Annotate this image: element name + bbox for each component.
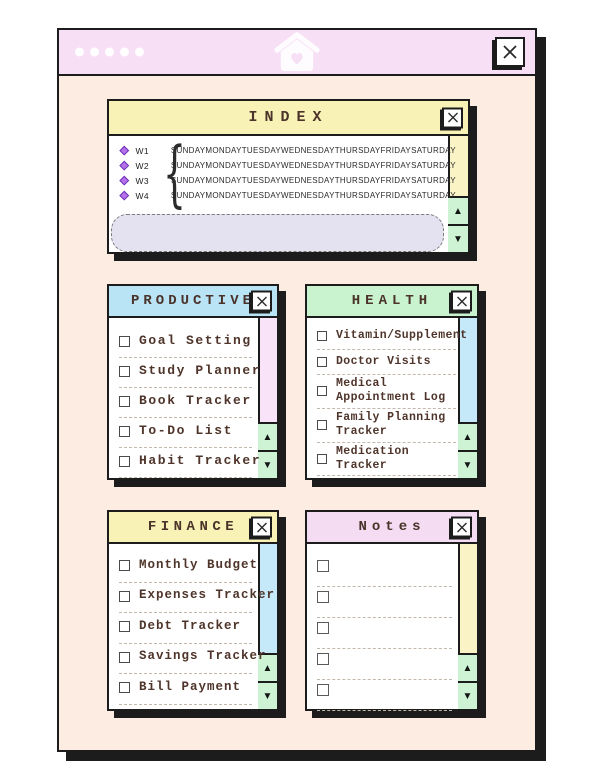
list-item[interactable]: Doctor Visits bbox=[317, 350, 456, 376]
notes-panel-title: Notes bbox=[358, 519, 425, 535]
day-link[interactable]: TUESDAY bbox=[242, 191, 281, 200]
checkbox[interactable] bbox=[119, 366, 130, 377]
index-panel: INDEX ▲ ▼ W1 bbox=[107, 99, 470, 254]
list-item[interactable]: Expenses Tracker bbox=[119, 583, 252, 614]
notes-item-list bbox=[317, 556, 452, 711]
list-item[interactable]: Book Tracker bbox=[119, 388, 252, 418]
list-item[interactable]: Family Planning Tracker bbox=[317, 409, 456, 443]
notes-close-button[interactable] bbox=[451, 517, 472, 538]
list-item[interactable]: Goal Setting bbox=[119, 328, 252, 358]
finance-panel-title: FINANCE bbox=[148, 519, 238, 535]
day-link[interactable]: FRIDAY bbox=[381, 161, 412, 170]
diamond-bullet-icon bbox=[120, 161, 129, 170]
dot-icon bbox=[135, 48, 144, 57]
health-panel-title: HEALTH bbox=[352, 293, 432, 309]
index-close-button[interactable] bbox=[442, 107, 463, 128]
item-label: Savings Tracker bbox=[139, 649, 267, 665]
up-arrow-icon: ▲ bbox=[463, 663, 473, 674]
item-label: Habit Tracker bbox=[139, 453, 261, 469]
day-link[interactable]: WEDNESDAY bbox=[281, 146, 335, 155]
page: INDEX ▲ ▼ W1 bbox=[0, 0, 600, 777]
day-list: SUNDAYMONDAYTUESDAYWEDNESDAYTHURSDAYFRID… bbox=[171, 176, 456, 185]
dot-icon bbox=[120, 48, 129, 57]
planner-window: INDEX ▲ ▼ W1 bbox=[57, 28, 537, 752]
day-link[interactable]: SUNDAY bbox=[171, 161, 206, 170]
index-week-list: W1 SUNDAYMONDAYTUESDAYWEDNESDAYTHURSDAYF… bbox=[121, 143, 438, 203]
scroll-up-button[interactable]: ▲ bbox=[258, 422, 277, 450]
item-label: Expenses Tracker bbox=[139, 588, 275, 604]
week-label: W2 bbox=[136, 161, 149, 171]
checkbox[interactable] bbox=[119, 396, 130, 407]
item-label: Bill Payment bbox=[139, 680, 241, 696]
day-list: SUNDAYMONDAYTUESDAYWEDNESDAYTHURSDAYFRID… bbox=[171, 191, 456, 200]
index-scroll-arrows: ▲ ▼ bbox=[448, 196, 468, 252]
day-link[interactable]: THURSDAY bbox=[335, 191, 381, 200]
day-link[interactable]: WEDNESDAY bbox=[281, 191, 335, 200]
scroll-up-button[interactable]: ▲ bbox=[458, 422, 477, 450]
down-arrow-icon: ▼ bbox=[463, 460, 473, 471]
item-label: Family Planning Tracker bbox=[336, 411, 456, 440]
down-arrow-icon: ▼ bbox=[453, 234, 463, 245]
checkbox[interactable] bbox=[119, 591, 130, 602]
day-link[interactable]: SUNDAY bbox=[171, 176, 206, 185]
finance-item-list: Monthly Budget Expenses Tracker Debt Tra… bbox=[119, 552, 252, 705]
index-week-row: W2 SUNDAYMONDAYTUESDAYWEDNESDAYTHURSDAYF… bbox=[121, 158, 438, 173]
item-label: Study Planner bbox=[139, 363, 261, 379]
checkbox[interactable] bbox=[317, 591, 329, 603]
checkbox[interactable] bbox=[317, 622, 329, 634]
checkbox[interactable] bbox=[317, 684, 329, 696]
finance-panel-body: ▲ ▼ Monthly Budget Expenses Tracker bbox=[109, 544, 277, 709]
item-label: Doctor Visits bbox=[336, 355, 431, 369]
window-close-button[interactable] bbox=[495, 37, 525, 67]
day-link[interactable]: SATURDAY bbox=[411, 146, 456, 155]
item-label: Vitamin/Supplement bbox=[336, 329, 467, 343]
checkbox[interactable] bbox=[119, 652, 130, 663]
day-link[interactable]: MONDAY bbox=[205, 161, 241, 170]
day-link[interactable]: THURSDAY bbox=[335, 146, 381, 155]
day-link[interactable]: MONDAY bbox=[205, 191, 241, 200]
checkbox[interactable] bbox=[317, 331, 327, 341]
health-item-list: Vitamin/Supplement Doctor Visits Medical… bbox=[317, 324, 456, 476]
index-week-row: W1 SUNDAYMONDAYTUESDAYWEDNESDAYTHURSDAYF… bbox=[121, 143, 438, 158]
list-item[interactable]: To-Do List bbox=[119, 418, 252, 448]
dot-icon bbox=[90, 48, 99, 57]
note-line[interactable] bbox=[317, 680, 452, 711]
notes-panel: Notes ▲ ▼ bbox=[305, 510, 479, 711]
health-panel-header: HEALTH bbox=[307, 286, 477, 318]
item-label: Book Tracker bbox=[139, 393, 252, 409]
day-link[interactable]: THURSDAY bbox=[335, 176, 381, 185]
list-item[interactable]: Savings Tracker bbox=[119, 644, 252, 675]
week-label: W4 bbox=[136, 191, 149, 201]
list-item[interactable]: Debt Tracker bbox=[119, 613, 252, 644]
checkbox[interactable] bbox=[317, 454, 327, 464]
notes-panel-body: ▲ ▼ bbox=[307, 544, 477, 709]
index-note-input[interactable] bbox=[111, 214, 444, 252]
note-line[interactable] bbox=[317, 556, 452, 587]
titlebar bbox=[59, 30, 535, 76]
checkbox[interactable] bbox=[317, 560, 329, 572]
down-arrow-icon: ▼ bbox=[263, 691, 273, 702]
item-label: Monthly Budget bbox=[139, 558, 258, 574]
day-link[interactable]: FRIDAY bbox=[381, 176, 412, 185]
day-link[interactable]: MONDAY bbox=[205, 176, 241, 185]
checkbox[interactable] bbox=[119, 682, 130, 693]
productive-item-list: Goal Setting Study Planner Book Tracker bbox=[119, 328, 252, 478]
day-list: SUNDAYMONDAYTUESDAYWEDNESDAYTHURSDAYFRID… bbox=[171, 146, 456, 155]
finance-panel-header: FINANCE bbox=[109, 512, 277, 544]
down-arrow-icon: ▼ bbox=[463, 691, 473, 702]
health-panel-body: ▲ ▼ Vitamin/Supplement Doctor Visits bbox=[307, 318, 477, 478]
day-link[interactable]: WEDNESDAY bbox=[281, 161, 335, 170]
note-line[interactable] bbox=[317, 618, 452, 649]
up-arrow-icon: ▲ bbox=[453, 206, 463, 217]
note-line[interactable] bbox=[317, 649, 452, 680]
day-link[interactable]: FRIDAY bbox=[381, 191, 412, 200]
item-label: To-Do List bbox=[139, 423, 233, 439]
checkbox[interactable] bbox=[317, 420, 327, 430]
productive-close-button[interactable] bbox=[251, 291, 272, 312]
week-label: W1 bbox=[136, 146, 149, 156]
list-item[interactable]: Vitamin/Supplement bbox=[317, 324, 456, 350]
scroll-down-button[interactable]: ▼ bbox=[258, 681, 277, 709]
item-label: Medication Tracker bbox=[336, 445, 456, 474]
diamond-bullet-icon bbox=[120, 146, 129, 155]
list-item[interactable]: Medical Appointment Log bbox=[317, 375, 456, 409]
day-link[interactable]: TUESDAY bbox=[242, 176, 281, 185]
checkbox[interactable] bbox=[317, 357, 327, 367]
scroll-up-button[interactable]: ▲ bbox=[448, 196, 468, 224]
day-link[interactable]: SATURDAY bbox=[411, 161, 456, 170]
notes-panel-header: Notes bbox=[307, 512, 477, 544]
list-item[interactable]: Medication Tracker bbox=[317, 443, 456, 477]
productive-panel: PRODUCTIVE ▲ ▼ Goal Setting bbox=[107, 284, 279, 480]
index-week-row: W3 SUNDAYMONDAYTUESDAYWEDNESDAYTHURSDAYF… bbox=[121, 173, 438, 188]
day-link[interactable]: SATURDAY bbox=[411, 191, 456, 200]
list-item[interactable]: Bill Payment bbox=[119, 674, 252, 705]
dot-icon bbox=[105, 48, 114, 57]
home-heart-icon[interactable] bbox=[274, 32, 320, 72]
checkbox[interactable] bbox=[119, 426, 130, 437]
day-link[interactable]: SATURDAY bbox=[411, 176, 456, 185]
day-link[interactable]: MONDAY bbox=[205, 146, 241, 155]
down-arrow-icon: ▼ bbox=[263, 460, 273, 471]
diamond-bullet-icon bbox=[120, 176, 129, 185]
index-panel-body: ▲ ▼ W1 SUNDAYMONDAYTUESDAYWEDNESDAYTHURS… bbox=[109, 136, 468, 252]
index-week-row: W4 SUNDAYMONDAYTUESDAYWEDNESDAYTHURSDAYF… bbox=[121, 188, 438, 203]
day-link[interactable]: THURSDAY bbox=[335, 161, 381, 170]
checkbox[interactable] bbox=[119, 456, 130, 467]
day-link[interactable]: TUESDAY bbox=[242, 161, 281, 170]
notes-scroll-arrows: ▲ ▼ bbox=[458, 653, 477, 709]
list-item[interactable]: Study Planner bbox=[119, 358, 252, 388]
index-panel-header: INDEX bbox=[109, 101, 468, 136]
scroll-up-button[interactable]: ▲ bbox=[458, 653, 477, 681]
day-link[interactable]: WEDNESDAY bbox=[281, 176, 335, 185]
checkbox[interactable] bbox=[317, 386, 327, 396]
finance-panel: FINANCE ▲ ▼ Monthly Budget bbox=[107, 510, 279, 711]
note-line[interactable] bbox=[317, 587, 452, 618]
dot-icon bbox=[75, 48, 84, 57]
checkbox[interactable] bbox=[119, 560, 130, 571]
list-item[interactable]: Habit Tracker bbox=[119, 448, 252, 478]
item-label: Debt Tracker bbox=[139, 619, 241, 635]
day-list: SUNDAYMONDAYTUESDAYWEDNESDAYTHURSDAYFRID… bbox=[171, 161, 456, 170]
week-label: W3 bbox=[136, 176, 149, 186]
health-scroll-arrows: ▲ ▼ bbox=[458, 422, 477, 478]
checkbox[interactable] bbox=[119, 621, 130, 632]
productive-panel-title: PRODUCTIVE bbox=[131, 293, 255, 309]
day-link[interactable]: SUNDAY bbox=[171, 146, 206, 155]
up-arrow-icon: ▲ bbox=[463, 432, 473, 443]
health-close-button[interactable] bbox=[451, 291, 472, 312]
item-label: Medical Appointment Log bbox=[336, 377, 456, 406]
index-panel-title: INDEX bbox=[248, 109, 328, 126]
scroll-down-button[interactable]: ▼ bbox=[458, 681, 477, 709]
day-link[interactable]: FRIDAY bbox=[381, 146, 412, 155]
scroll-down-button[interactable]: ▼ bbox=[458, 450, 477, 478]
scroll-down-button[interactable]: ▼ bbox=[448, 224, 468, 252]
productive-panel-body: ▲ ▼ Goal Setting Study Planner bbox=[109, 318, 277, 478]
finance-close-button[interactable] bbox=[251, 517, 272, 538]
day-link[interactable]: SUNDAY bbox=[171, 191, 206, 200]
health-panel: HEALTH ▲ ▼ Vitamin/Supplement bbox=[305, 284, 479, 480]
checkbox[interactable] bbox=[119, 336, 130, 347]
checkbox[interactable] bbox=[317, 653, 329, 665]
item-label: Goal Setting bbox=[139, 333, 252, 349]
day-link[interactable]: TUESDAY bbox=[242, 146, 281, 155]
productive-panel-header: PRODUCTIVE bbox=[109, 286, 277, 318]
list-item[interactable]: Monthly Budget bbox=[119, 552, 252, 583]
titlebar-dots bbox=[75, 48, 144, 57]
up-arrow-icon: ▲ bbox=[263, 432, 273, 443]
diamond-bullet-icon bbox=[120, 191, 129, 200]
